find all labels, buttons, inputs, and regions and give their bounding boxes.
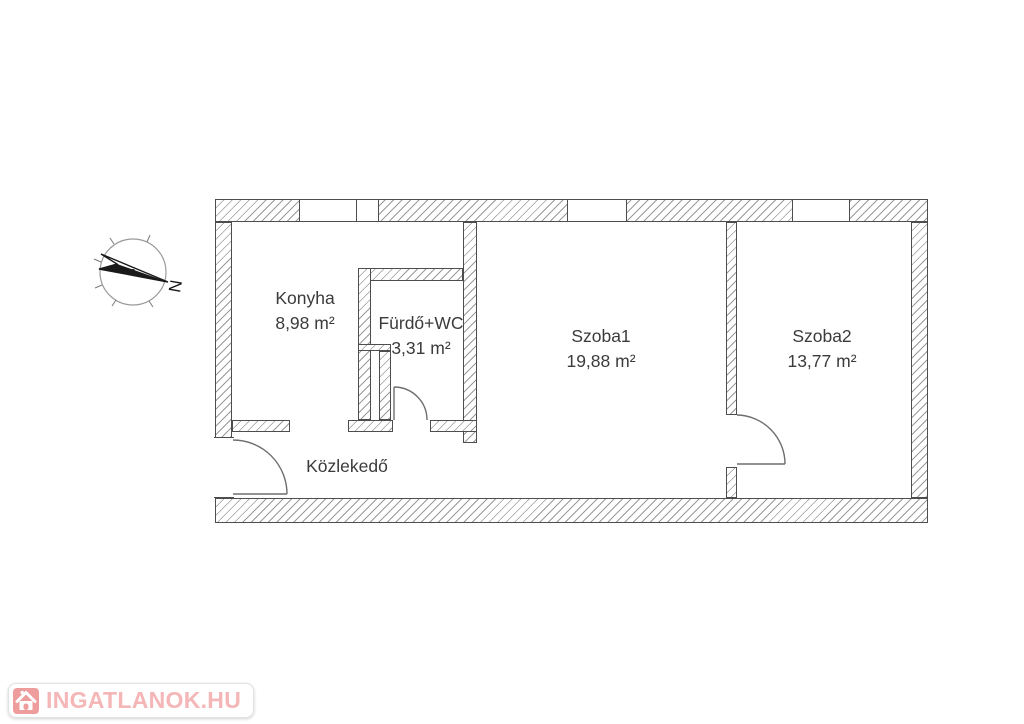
floor-plan: N Konyha 8,98 m² Fürdő+WC 3,31 m² Szoba1… [0,0,1024,724]
wall-szoba-divider-bottom [726,467,737,498]
room-area: 13,77 m² [787,349,856,374]
wall-hall-north-a [232,420,290,432]
wall-bathroom-north [358,268,463,281]
window-mullion [356,200,357,221]
wall-shaft-stub [379,351,391,420]
entrance-opening [214,437,234,498]
north-needle [99,254,168,282]
room-name: Szoba1 [566,324,635,349]
window-szoba2 [792,199,850,222]
room-label-szoba2: Szoba2 13,77 m² [787,324,856,374]
wall-outer-right [911,222,928,498]
compass-icon: N [92,228,202,323]
room-area: 8,98 m² [275,311,334,336]
north-needle-fill [99,264,168,282]
room-label-konyha: Konyha 8,98 m² [275,286,334,336]
room-name: Konyha [275,286,334,311]
room-name: Fürdő+WC [378,311,463,336]
ingatlanok-logo: INGATLANOK.HU [8,683,254,718]
entrance-door-arc [233,440,287,494]
room-label-furdo: Fürdő+WC 3,31 m² [378,311,463,361]
room-area: 3,31 m² [378,336,463,361]
wall-outer-bottom [215,498,928,523]
window-szoba1 [567,199,627,222]
room-name: Közlekedő [306,454,388,479]
szoba2-door-arc [737,415,785,464]
wall-szoba-divider-top [726,222,737,415]
compass-circle [100,239,166,305]
bathroom-door-arc [394,387,427,420]
door-symbols [0,0,1024,724]
window-konyha [299,199,379,222]
house-icon [13,688,39,714]
wall-szoba1-west [463,222,477,443]
room-label-kozlekedo: Közlekedő [306,454,388,479]
wall-hall-north-c [430,420,477,432]
north-label: N [165,278,186,293]
room-label-szoba1: Szoba1 19,88 m² [566,324,635,374]
compass-ticks [94,235,153,307]
room-area: 19,88 m² [566,349,635,374]
watermark-text: INGATLANOK.HU [46,689,241,712]
compass-center-dot [131,269,135,273]
room-name: Szoba2 [787,324,856,349]
wall-hall-north-b [348,420,393,432]
